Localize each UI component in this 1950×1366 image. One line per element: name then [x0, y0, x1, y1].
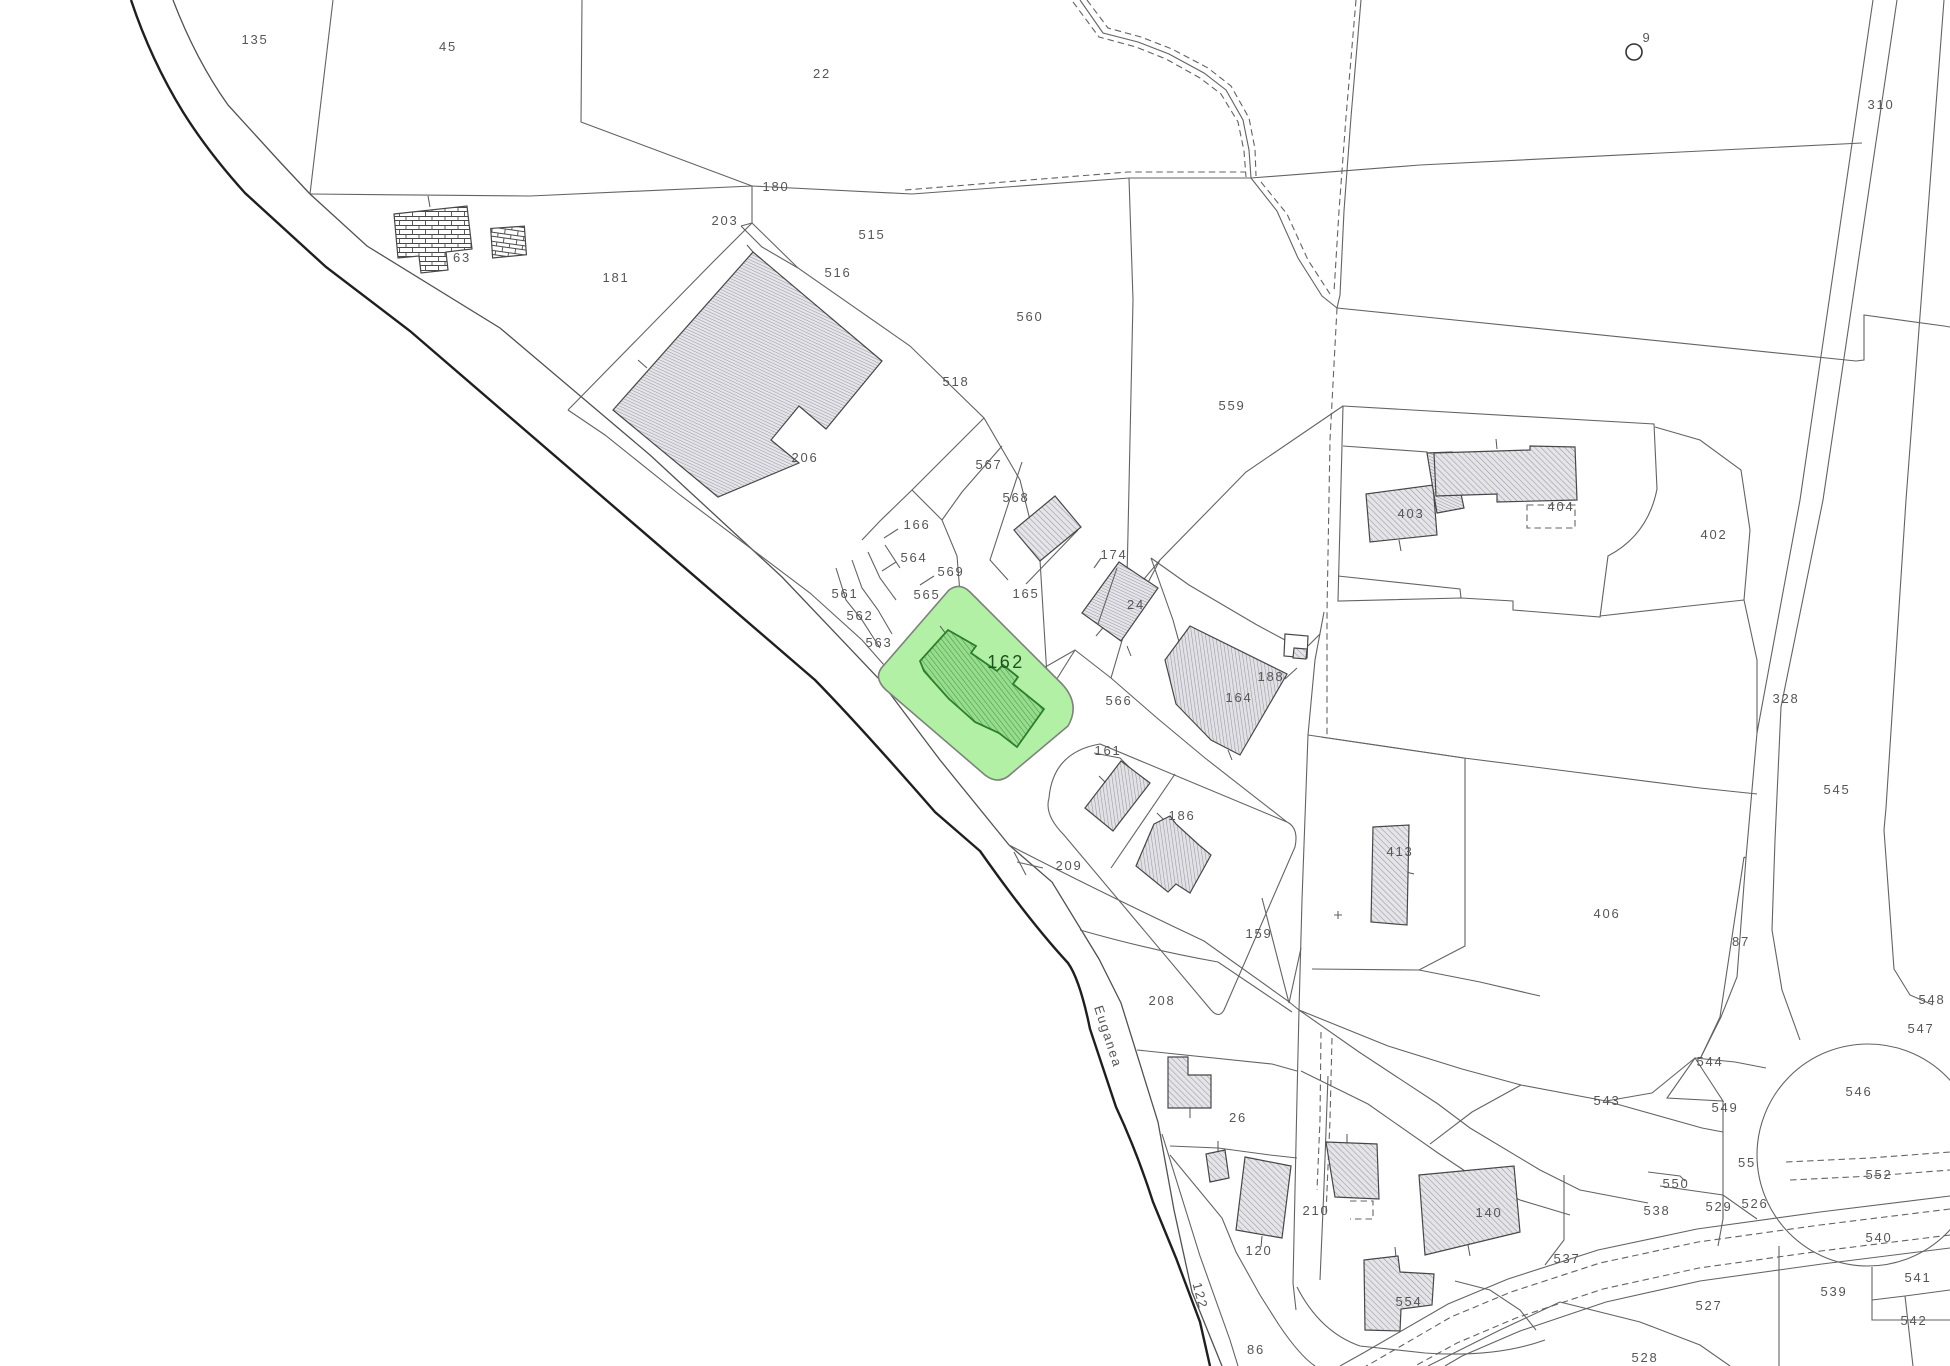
svg-text:174: 174 [1100, 547, 1127, 562]
svg-text:515: 515 [858, 227, 885, 242]
svg-text:328: 328 [1772, 691, 1799, 706]
svg-text:565: 565 [913, 587, 940, 602]
svg-text:546: 546 [1845, 1084, 1872, 1099]
svg-text:406: 406 [1593, 906, 1620, 921]
svg-text:188: 188 [1257, 669, 1284, 684]
svg-text:545: 545 [1823, 782, 1850, 797]
svg-text:552: 552 [1865, 1167, 1892, 1182]
svg-text:209: 209 [1055, 858, 1082, 873]
svg-text:541: 541 [1904, 1270, 1931, 1285]
svg-text:26: 26 [1229, 1110, 1247, 1125]
svg-text:540: 540 [1865, 1230, 1892, 1245]
svg-text:22: 22 [813, 66, 831, 81]
svg-text:563: 563 [865, 635, 892, 650]
svg-text:569: 569 [937, 564, 964, 579]
svg-text:24: 24 [1127, 597, 1145, 612]
svg-text:180: 180 [762, 179, 789, 194]
svg-text:549: 549 [1711, 1100, 1738, 1115]
svg-text:206: 206 [791, 450, 818, 465]
svg-text:45: 45 [439, 39, 457, 54]
svg-text:86: 86 [1247, 1342, 1265, 1357]
svg-text:526: 526 [1741, 1196, 1768, 1211]
svg-text:538: 538 [1643, 1203, 1670, 1218]
svg-text:164: 164 [1225, 690, 1252, 705]
svg-text:159: 159 [1245, 926, 1272, 941]
svg-text:548: 548 [1918, 992, 1945, 1007]
svg-text:203: 203 [711, 213, 738, 228]
svg-text:63: 63 [453, 250, 471, 265]
svg-text:529: 529 [1705, 1199, 1732, 1214]
svg-text:161: 161 [1094, 743, 1121, 758]
svg-text:403: 403 [1397, 506, 1424, 521]
svg-text:560: 560 [1016, 309, 1043, 324]
svg-text:547: 547 [1907, 1021, 1934, 1036]
svg-text:55: 55 [1738, 1155, 1756, 1170]
svg-text:527: 527 [1695, 1298, 1722, 1313]
svg-text:550: 550 [1662, 1176, 1689, 1191]
svg-text:568: 568 [1002, 490, 1029, 505]
svg-text:543: 543 [1593, 1093, 1620, 1108]
svg-text:566: 566 [1105, 693, 1132, 708]
svg-text:402: 402 [1700, 527, 1727, 542]
svg-text:518: 518 [942, 374, 969, 389]
svg-text:554: 554 [1395, 1294, 1422, 1309]
svg-text:567: 567 [975, 457, 1002, 472]
svg-text:404: 404 [1547, 499, 1574, 514]
svg-text:208: 208 [1148, 993, 1175, 1008]
svg-text:564: 564 [900, 550, 927, 565]
svg-text:87: 87 [1732, 934, 1750, 949]
svg-text:542: 542 [1900, 1313, 1927, 1328]
svg-text:413: 413 [1386, 844, 1413, 859]
svg-text:561: 561 [831, 586, 858, 601]
svg-text:562: 562 [846, 608, 873, 623]
svg-text:537: 537 [1553, 1251, 1580, 1266]
svg-text:135: 135 [241, 32, 268, 47]
svg-text:165: 165 [1012, 586, 1039, 601]
svg-text:528: 528 [1631, 1350, 1658, 1365]
svg-text:186: 186 [1168, 808, 1195, 823]
svg-text:166: 166 [903, 517, 930, 532]
svg-text:539: 539 [1820, 1284, 1847, 1299]
svg-text:544: 544 [1696, 1054, 1723, 1069]
svg-text:162: 162 [987, 652, 1025, 672]
svg-text:181: 181 [602, 270, 629, 285]
svg-text:210: 210 [1302, 1203, 1329, 1218]
svg-text:9: 9 [1642, 30, 1651, 45]
svg-text:310: 310 [1867, 97, 1894, 112]
svg-text:559: 559 [1218, 398, 1245, 413]
svg-text:516: 516 [824, 265, 851, 280]
svg-text:120: 120 [1245, 1243, 1272, 1258]
svg-text:140: 140 [1475, 1205, 1502, 1220]
